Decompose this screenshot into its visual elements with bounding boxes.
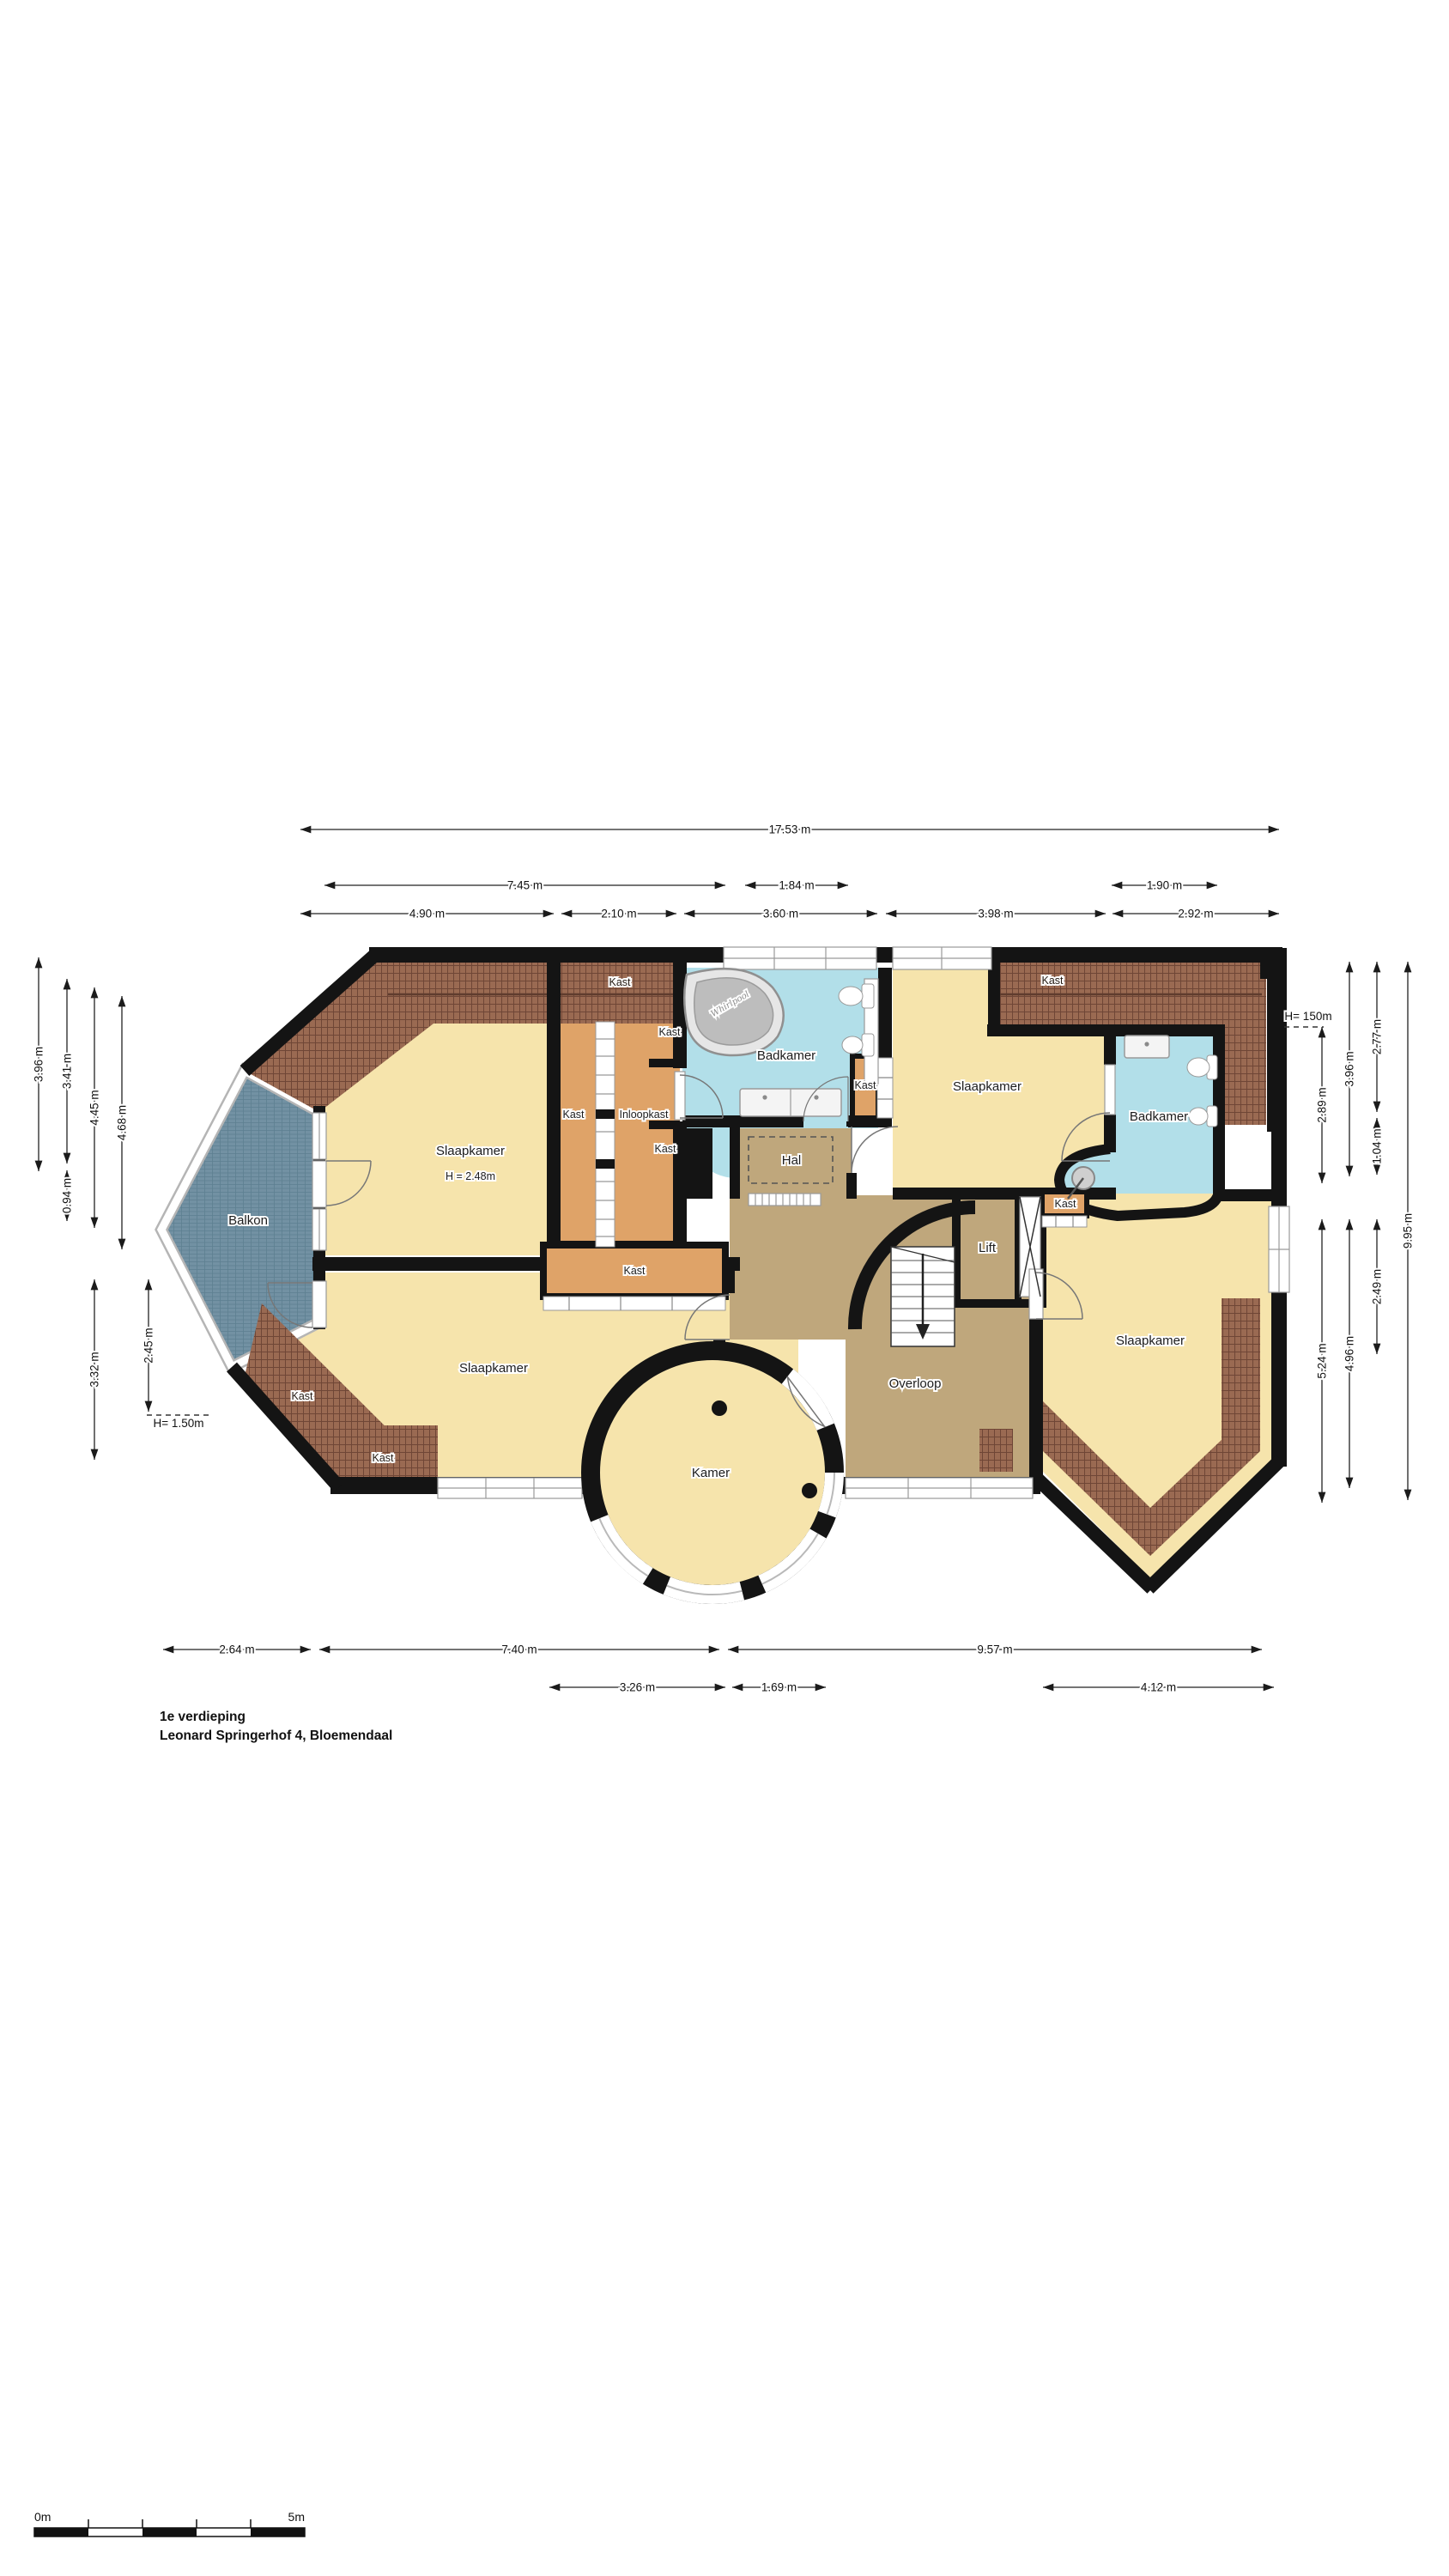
- dimension-label: 2.92 m: [1178, 908, 1213, 920]
- room-label: Badkamer: [757, 1048, 815, 1063]
- room-label: Lift: [979, 1241, 997, 1255]
- floorplan-page: 0m 5m 1e verdieping Leonard Springerhof …: [0, 0, 1449, 2576]
- room-label: Kast: [658, 1026, 681, 1038]
- dimension-label: 3.26 m: [620, 1681, 655, 1694]
- room-label: Kast: [291, 1390, 313, 1402]
- room-label: Slaapkamer: [436, 1144, 505, 1158]
- dimension-label: 9.95 m: [1402, 1213, 1415, 1249]
- room-label: Badkamer: [1130, 1109, 1188, 1124]
- room-label: Kast: [1041, 975, 1064, 987]
- title-floor: 1e verdieping: [160, 1710, 246, 1724]
- dimension-label: 1.90 m: [1147, 879, 1182, 892]
- room-label: Slaapkamer: [1116, 1334, 1185, 1348]
- title-address: Leonard Springerhof 4, Bloemendaal: [160, 1728, 392, 1743]
- room-label: Kamer: [692, 1466, 730, 1480]
- room-label: Kast: [623, 1265, 646, 1277]
- staircase: [891, 1247, 955, 1346]
- washbasin-right: [1125, 1036, 1169, 1058]
- bidet-top-bathroom: [842, 1036, 863, 1054]
- dimension-label: 3.32 m: [88, 1352, 101, 1387]
- closet-corridor-floor: [554, 1018, 680, 1249]
- roof-hatch-landing-corner: [979, 1429, 1013, 1472]
- wall-block-topright-corner: [1260, 948, 1282, 979]
- dimension-label: 3.60 m: [763, 908, 798, 920]
- height-annotation: H= 150m: [1284, 1010, 1331, 1023]
- room-label: Kast: [609, 976, 631, 988]
- dimension-label: 5.24 m: [1316, 1343, 1329, 1378]
- toilet-tank-top: [862, 984, 874, 1008]
- dimension-label: 9.57 m: [977, 1643, 1012, 1656]
- dimension-label: 4.96 m: [1343, 1336, 1356, 1371]
- bidet-right-bathroom: [1189, 1108, 1208, 1125]
- toilet-right-bathroom: [1187, 1058, 1210, 1077]
- room-label: Slaapkamer: [459, 1361, 528, 1376]
- wall-block-hall-west: [680, 1128, 712, 1199]
- dimension-label: 0.94 m: [61, 1178, 74, 1213]
- dimension-label: 1.04 m: [1371, 1128, 1384, 1163]
- tower-post-east: [802, 1483, 817, 1498]
- room-label: Balkon: [228, 1213, 268, 1228]
- room-label: Kast: [372, 1452, 394, 1464]
- dimension-label: 3.96 m: [33, 1047, 45, 1082]
- room-label: Overloop: [889, 1376, 942, 1391]
- dimension-label: 4.90 m: [409, 908, 445, 920]
- dimension-label: 2.77 m: [1371, 1019, 1384, 1054]
- dimension-label: 3.96 m: [1343, 1051, 1356, 1086]
- room-label: Inloopkast: [620, 1109, 670, 1121]
- door-gap-walkin: [675, 1072, 685, 1120]
- door-balcony-bottom: [312, 1281, 326, 1327]
- scale-start-label: 0m: [34, 2510, 51, 2524]
- dimension-label: 1.69 m: [761, 1681, 797, 1694]
- dimension-label: 2.45 m: [142, 1327, 155, 1363]
- dimension-label: 4.12 m: [1141, 1681, 1176, 1694]
- bidet-tank-top: [862, 1034, 874, 1056]
- room-label: Slaapkamer: [953, 1079, 1022, 1094]
- tower-post-north: [712, 1400, 727, 1416]
- door-gap-bathroom-right: [1105, 1065, 1115, 1115]
- dimension-label: 2.10 m: [601, 908, 636, 920]
- bidet-tank-right: [1207, 1106, 1217, 1127]
- dimension-label: 1.84 m: [779, 879, 814, 892]
- dimension-label: 2.64 m: [219, 1643, 254, 1656]
- room-label: H = 2.48m: [446, 1170, 495, 1182]
- room-label: Kast: [1054, 1198, 1076, 1210]
- closet-corridor-shelving: [596, 1022, 615, 1247]
- scale-end-label: 5m: [288, 2510, 305, 2524]
- wall-block-right-upper: [1267, 975, 1280, 1132]
- room-label: Kast: [562, 1109, 585, 1121]
- room-label: Kast: [854, 1079, 876, 1091]
- dimension-label: 2.89 m: [1316, 1087, 1329, 1122]
- door-balcony-top: [312, 1161, 326, 1207]
- dimension-label: 4.68 m: [116, 1105, 129, 1140]
- dimension-label: 7.40 m: [501, 1643, 537, 1656]
- room-label: Kast: [654, 1143, 676, 1155]
- height-annotation: H= 1.50m: [154, 1417, 204, 1430]
- floorplan-drawing: 0m 5m 1e verdieping Leonard Springerhof …: [0, 0, 1449, 2576]
- closet-near-lift-shelf: [1042, 1216, 1087, 1227]
- dimension-label: 4.45 m: [88, 1090, 101, 1125]
- dimension-label: 3.98 m: [978, 908, 1013, 920]
- dimension-label: 3.41 m: [61, 1054, 74, 1089]
- room-label: Hal: [782, 1153, 802, 1168]
- dimension-label: 2.49 m: [1371, 1269, 1384, 1304]
- dimension-label: 7.45 m: [507, 879, 543, 892]
- dimension-label: 17.53 m: [769, 823, 811, 836]
- closet-bathroom-se-shelf: [877, 1058, 893, 1118]
- toilet-top-bathroom: [839, 987, 863, 1005]
